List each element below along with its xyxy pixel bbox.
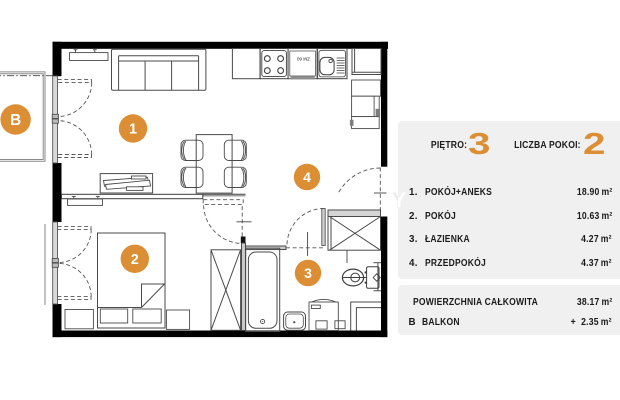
svg-text:1: 1 [129,122,137,138]
svg-text:2: 2 [131,252,139,268]
svg-text:3: 3 [304,265,312,281]
svg-text:ZM 60: ZM 60 [296,57,309,62]
svg-text:4: 4 [303,169,311,185]
svg-text:B: B [10,112,21,129]
